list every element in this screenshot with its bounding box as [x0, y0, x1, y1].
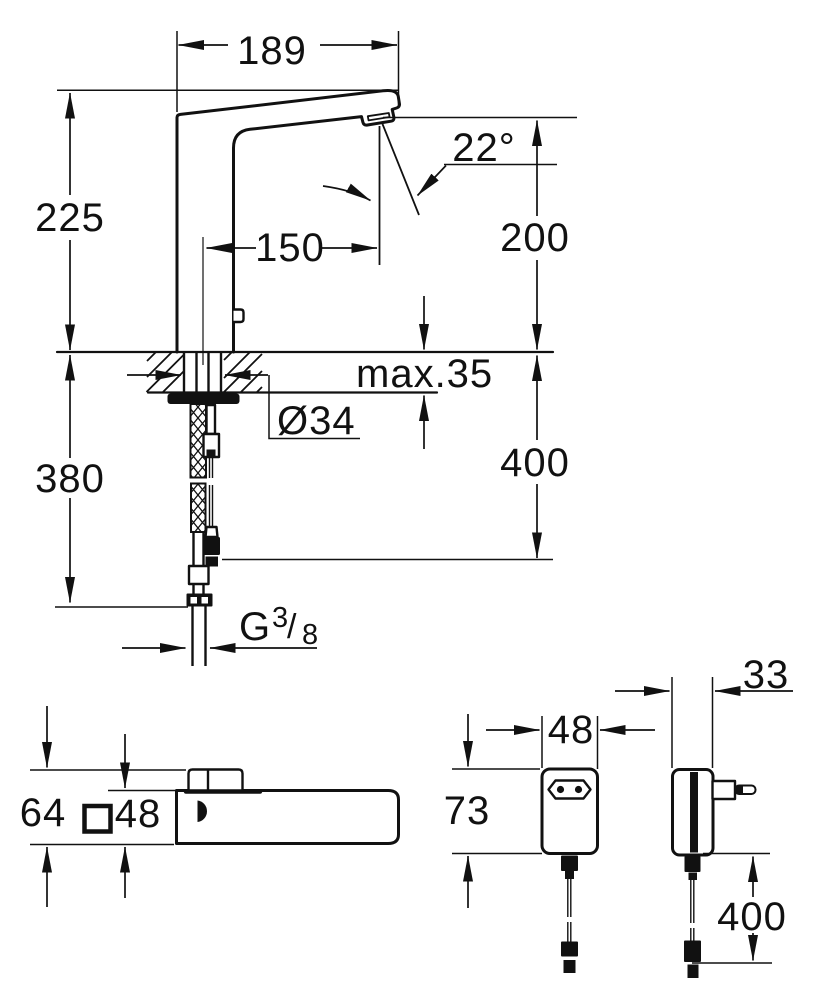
dim-hose-drop: 380: [35, 457, 105, 501]
thread-prefix: G: [239, 605, 271, 649]
dim-base-square: 48: [115, 792, 162, 836]
dim-cable-length: 400: [717, 895, 787, 939]
dim-adapter-height: 73: [444, 789, 491, 833]
dim-adapter-width: 48: [548, 708, 595, 752]
hose-sleeve: [189, 566, 209, 584]
faucet-side-view: 189 225 150 22° 200 max.35 Ø34 380 400 G…: [35, 29, 577, 666]
dim-hole-diameter: Ø34: [277, 399, 356, 443]
dim-cable-drop: 400: [500, 441, 570, 485]
counter-hatching-right: [224, 352, 262, 392]
dim-spout-reach: 189: [237, 29, 307, 73]
cable-plug-top: [206, 527, 218, 537]
braided-hose-lower: [191, 484, 206, 533]
dim-max-deck-thickness: max.35: [356, 352, 493, 396]
outlet-tab-top-view: [189, 770, 243, 791]
mounting-flange: [168, 394, 240, 405]
plug-base: [713, 781, 736, 799]
dim-spout-projection: 150: [255, 226, 325, 270]
swivel-arc-arrow: [323, 186, 371, 201]
spray-angle-line: [383, 124, 420, 215]
cable-plug: [204, 537, 221, 555]
cable-boot: [207, 405, 216, 434]
sensor-window-tab: [234, 310, 244, 323]
angle-leader-arrow: [418, 166, 447, 196]
power-supply-side-view: 33 400: [615, 653, 793, 978]
adapter-cable-front: [561, 856, 578, 974]
dim-thread-size: G 3 / 8: [239, 602, 319, 651]
euro-socket-icon: [549, 781, 591, 799]
dim-outlet-height: 200: [500, 216, 570, 260]
thread-pipe: [193, 607, 206, 667]
power-supply-front-view: 48 73: [444, 708, 655, 973]
dim-body-height: 225: [35, 196, 105, 240]
dimension-drawing-canvas: 189 225 150 22° 200 max.35 Ø34 380 400 G…: [0, 0, 834, 1000]
faucet-top-view: 64 48: [20, 706, 399, 907]
dim-overall-depth: 64: [20, 791, 67, 835]
dim-spray-angle: 22°: [452, 126, 516, 170]
thread-slash: /: [287, 608, 297, 646]
spout-body-top-view: [177, 791, 399, 844]
square-symbol-icon: [85, 806, 111, 832]
faucet-outline: [177, 90, 399, 352]
dim-adapter-depth: 33: [743, 653, 790, 697]
adapter-cable-side: [684, 856, 701, 978]
supply-hose-and-cable: [187, 404, 221, 666]
thread-denominator: 8: [302, 619, 319, 651]
counter-hatching-left: [147, 352, 185, 392]
technical-drawing-page: 189 225 150 22° 200 max.35 Ø34 380 400 G…: [0, 0, 834, 1000]
g38-nut: [187, 594, 213, 607]
adapter-stripe: [690, 772, 698, 853]
